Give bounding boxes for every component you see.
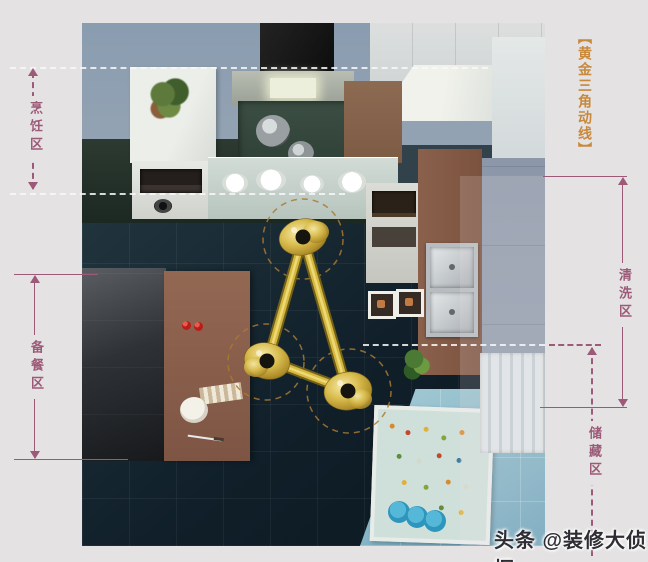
prep-bottom-line xyxy=(14,459,128,460)
prep-arrow-up xyxy=(30,275,40,283)
cooking-zone-label: 烹饪区 xyxy=(25,96,46,160)
kitchen-golden-triangle-infographic: 烹饪区 备餐区 【黄金三角动线】 清洗区 储藏区 头条 @装修大侦探 xyxy=(0,0,648,562)
cooking-arrow-down xyxy=(28,182,38,190)
washing-arrow-up xyxy=(618,177,628,185)
washing-arrow-down xyxy=(618,399,628,407)
kitchen-top-view-photo xyxy=(82,23,545,546)
washing-bottom-line xyxy=(540,407,627,408)
washing-zone-label: 清洗区 xyxy=(614,263,635,327)
cooking-arrow-up xyxy=(28,68,38,76)
dashed-guide-line-storage xyxy=(363,344,545,346)
watermark: 头条 @装修大侦探 xyxy=(494,524,648,562)
prep-top-line xyxy=(14,274,98,275)
storage-arrow-up xyxy=(587,347,597,355)
golden-triangle-title: 【黄金三角动线】 xyxy=(575,30,595,158)
dashed-guide-line-second xyxy=(10,193,345,195)
storage-top-line xyxy=(549,344,601,346)
washing-top-line xyxy=(543,176,627,177)
storage-zone-label: 储藏区 xyxy=(584,421,605,485)
prep-zone-label: 备餐区 xyxy=(26,335,47,399)
vertex-left xyxy=(240,338,293,384)
dashed-guide-line-top xyxy=(10,67,488,69)
golden-triangle-graphic xyxy=(82,23,545,546)
prep-arrow-down xyxy=(30,451,40,459)
vertex-top xyxy=(276,214,330,259)
vertex-right xyxy=(322,369,375,413)
